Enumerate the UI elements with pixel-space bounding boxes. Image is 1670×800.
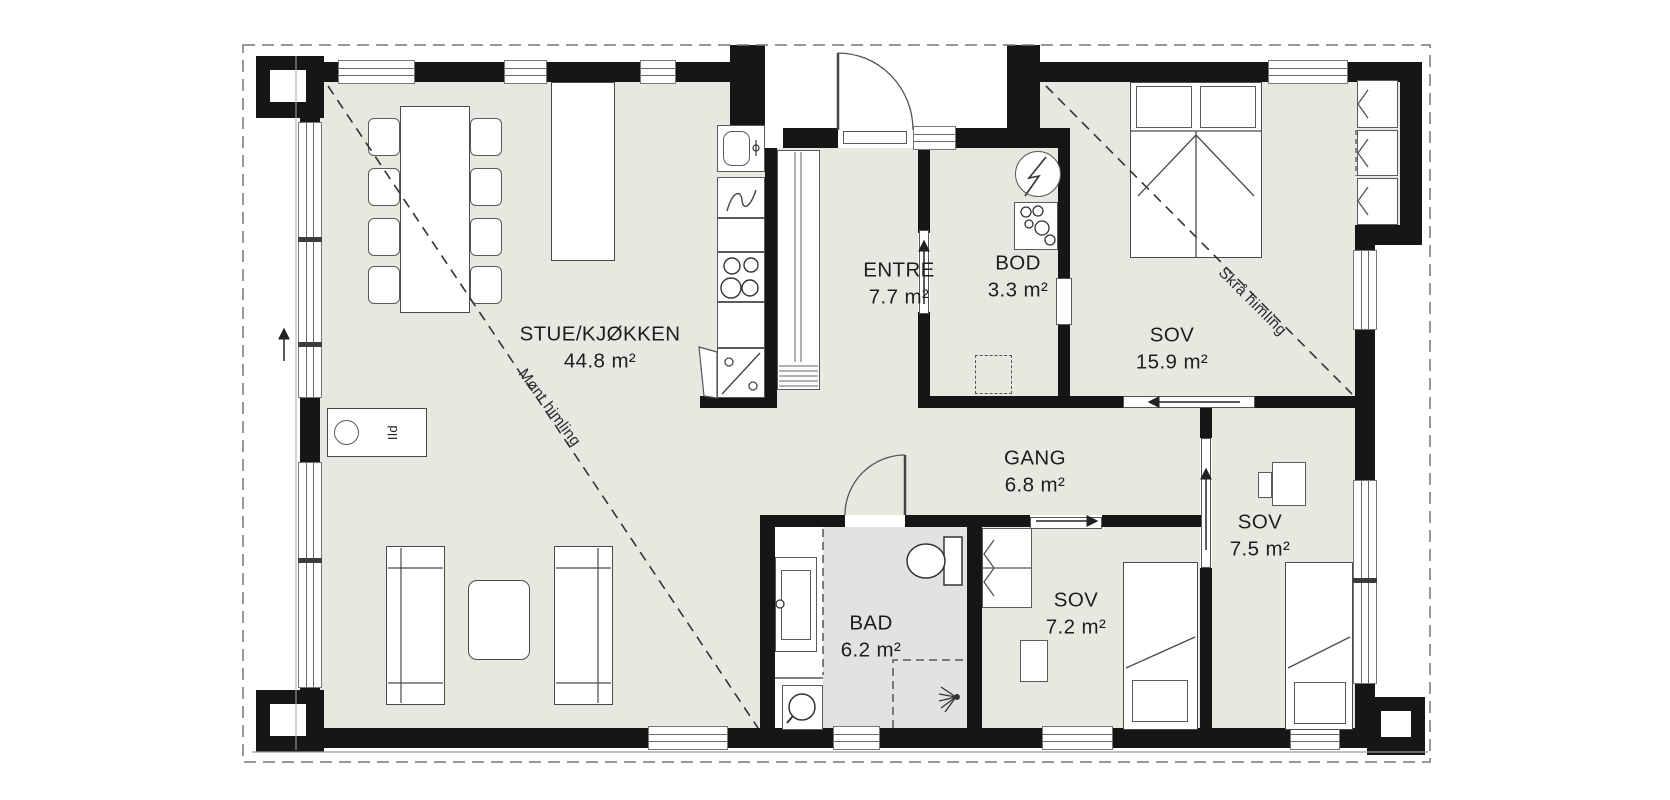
floor-plan-canvas: Ild STUE/KJØKKEN 44.8 m² ENTRE 7.7 m² BO… — [0, 0, 1670, 800]
wall-segment — [1040, 62, 1268, 82]
window — [298, 122, 322, 398]
wall-segment — [918, 148, 930, 233]
wall-segment — [1007, 45, 1040, 148]
wall-segment — [1355, 225, 1422, 245]
sink-basin — [723, 131, 750, 166]
future-equipment-outline — [975, 355, 1012, 394]
floor-hallway — [763, 408, 1200, 515]
wall-segment — [728, 728, 837, 748]
chair — [470, 266, 502, 304]
window-sidelight — [913, 126, 956, 150]
sliding-door — [1123, 396, 1255, 408]
wall-segment — [300, 398, 320, 462]
pillow — [1294, 682, 1346, 724]
kitchen-corner-unit — [717, 348, 765, 398]
window-mullion — [298, 558, 322, 563]
kitchen-counter — [717, 218, 765, 252]
room-area: 7.5 m² — [1230, 536, 1291, 563]
entry-porch — [765, 45, 1007, 128]
coffee-table — [468, 580, 530, 660]
window — [298, 462, 322, 688]
corner-post-core — [1381, 711, 1411, 737]
room-name: GANG — [1004, 445, 1066, 472]
wall-segment — [1348, 62, 1422, 82]
tech-unit — [1014, 202, 1058, 250]
chair — [368, 168, 400, 206]
room-label-hallway: GANG 6.8 m² — [1004, 445, 1066, 498]
room-label-entry: ENTRE 7.7 m² — [863, 257, 934, 310]
sofa — [386, 546, 445, 705]
room-name: SOV — [1230, 509, 1291, 536]
room-area: 44.8 m² — [520, 348, 681, 375]
pillow — [1136, 86, 1192, 128]
room-area: 7.7 m² — [863, 284, 934, 311]
room-label-living-kitchen: STUE/KJØKKEN 44.8 m² — [520, 321, 681, 374]
chair — [470, 168, 502, 206]
wall-segment — [1340, 728, 1367, 748]
room-label-storage: BOD 3.3 m² — [988, 250, 1049, 303]
wall-segment — [982, 515, 1030, 527]
room-label-bathroom: BAD 6.2 m² — [841, 610, 902, 663]
window — [640, 60, 676, 84]
window — [833, 726, 880, 750]
chair — [470, 118, 502, 156]
room-name: BAD — [841, 610, 902, 637]
entry-wardrobe — [777, 150, 820, 390]
sofa — [554, 546, 613, 705]
sliding-door — [1030, 517, 1102, 529]
wall-segment — [1113, 728, 1290, 748]
wall-segment — [783, 128, 838, 148]
wall-segment — [760, 515, 775, 730]
corner-post-core — [270, 704, 306, 736]
dining-table — [400, 106, 470, 313]
window — [1042, 726, 1113, 750]
fireplace-label: Ild — [385, 425, 400, 440]
wall-niche — [1056, 278, 1072, 325]
chair — [368, 266, 400, 304]
entry-door-sill — [843, 131, 907, 144]
pillow — [1200, 86, 1256, 128]
wall-segment — [918, 396, 1123, 408]
window — [1353, 250, 1377, 330]
room-name: BOD — [988, 250, 1049, 277]
wall-segment — [1255, 396, 1375, 408]
stove-flue-circle — [334, 420, 359, 445]
wall-segment — [1058, 148, 1070, 396]
wall-segment — [1400, 82, 1422, 245]
room-label-bedroom-2: SOV 7.2 m² — [1046, 587, 1107, 640]
wall-segment — [967, 515, 982, 730]
room-area: 3.3 m² — [988, 277, 1049, 304]
wall-segment — [918, 312, 930, 396]
wall-segment — [1200, 408, 1212, 438]
washing-machine — [782, 685, 823, 730]
room-name: ENTRE — [863, 257, 934, 284]
wardrobe — [1357, 130, 1398, 176]
vanity-basin — [781, 570, 811, 640]
pillow — [1132, 680, 1188, 722]
wall-segment — [1200, 568, 1212, 730]
chair — [470, 218, 502, 256]
wardrobe — [982, 528, 1032, 608]
window-mullion — [298, 342, 322, 347]
electrical-panel — [1015, 151, 1061, 197]
wardrobe — [1357, 80, 1398, 128]
wall-segment — [765, 148, 777, 408]
desk — [1272, 462, 1306, 506]
room-area: 6.2 m² — [841, 637, 902, 664]
sliding-door — [1201, 438, 1211, 568]
cooktop — [717, 252, 765, 302]
room-name: SOV — [1136, 322, 1208, 349]
kitchen-island — [551, 82, 615, 261]
corner-post-core — [270, 70, 306, 102]
chair — [368, 218, 400, 256]
chair — [368, 118, 400, 156]
nightstand — [1020, 640, 1048, 682]
room-name: STUE/KJØKKEN — [520, 321, 681, 348]
kitchen-counter — [717, 302, 765, 348]
wall-segment — [877, 728, 1042, 748]
wall-segment — [775, 515, 845, 527]
room-name: SOV — [1046, 587, 1107, 614]
window — [1268, 60, 1348, 84]
dishwasher — [717, 177, 765, 218]
desk-chair — [1258, 472, 1272, 498]
room-area: 15.9 m² — [1136, 349, 1208, 376]
wardrobe — [1357, 178, 1398, 225]
window-mullion — [1353, 578, 1377, 583]
window — [338, 60, 415, 84]
wall-segment — [300, 728, 648, 748]
wall-segment — [1102, 515, 1203, 527]
window — [648, 726, 728, 750]
window-mullion — [298, 237, 322, 242]
window — [504, 60, 547, 84]
room-label-bedroom-3: SOV 7.5 m² — [1230, 509, 1291, 562]
room-area: 7.2 m² — [1046, 614, 1107, 641]
room-area: 6.8 m² — [1004, 472, 1066, 499]
room-label-bedroom-large: SOV 15.9 m² — [1136, 322, 1208, 375]
